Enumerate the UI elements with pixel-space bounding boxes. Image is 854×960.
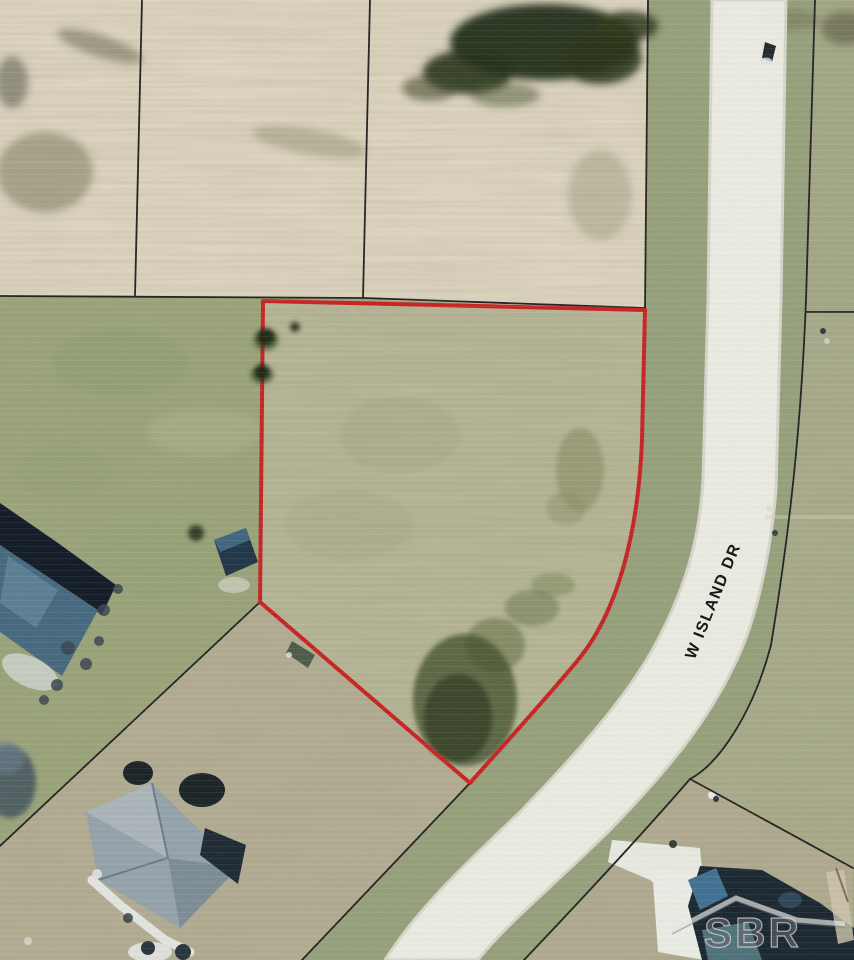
aerial-photo: W ISLAND DR SBR (0, 0, 854, 960)
scanline-overlay (0, 0, 854, 960)
aerial-map: W ISLAND DR SBR (0, 0, 854, 960)
watermark-text: SBR (704, 909, 802, 956)
